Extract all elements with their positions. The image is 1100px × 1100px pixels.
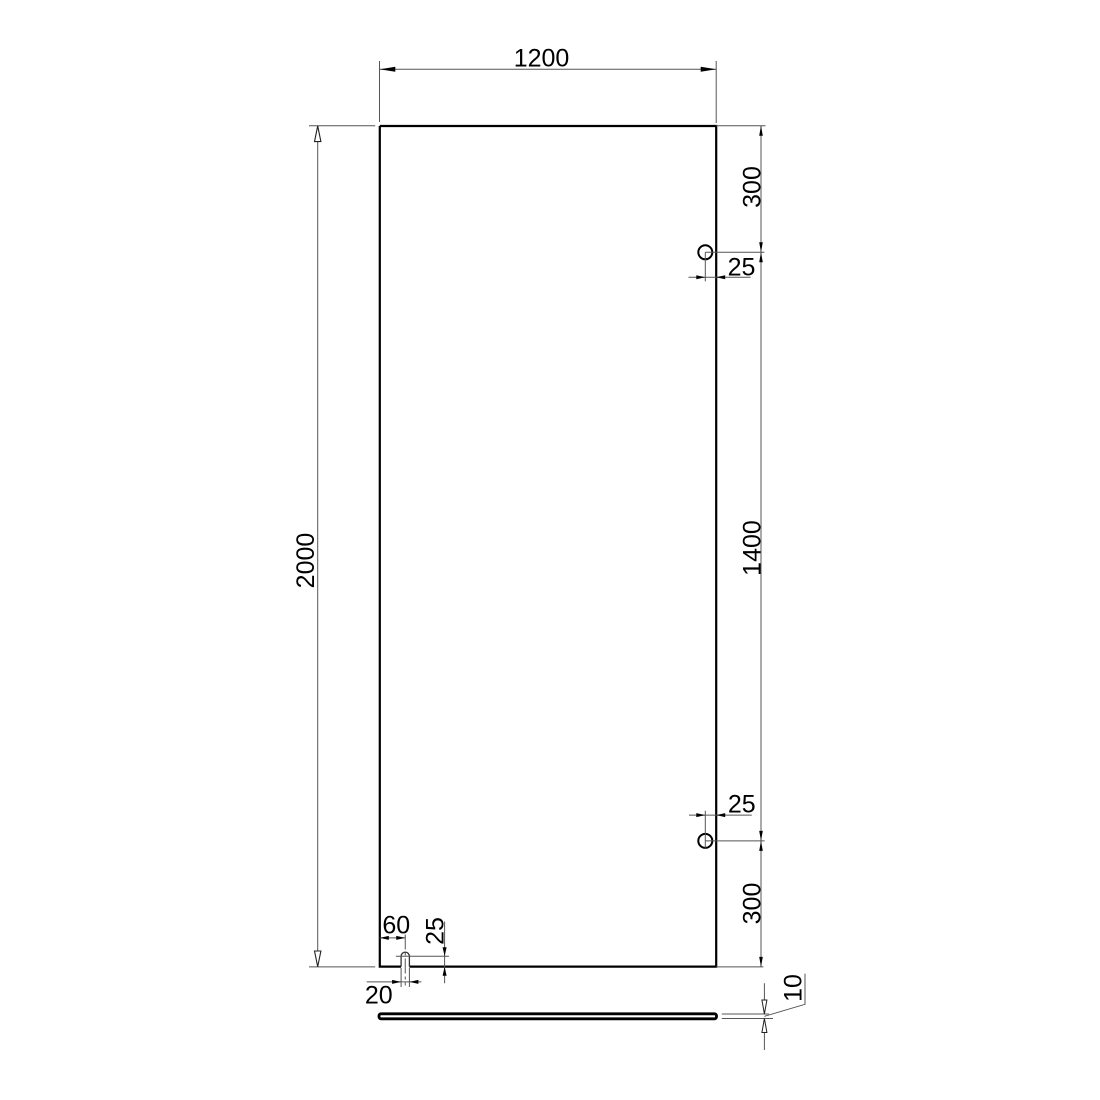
svg-text:1200: 1200 (514, 44, 570, 72)
svg-text:25: 25 (422, 917, 450, 945)
svg-text:2000: 2000 (292, 533, 320, 589)
svg-text:20: 20 (365, 982, 393, 1010)
svg-text:25: 25 (728, 254, 756, 282)
svg-text:60: 60 (382, 911, 410, 939)
svg-text:10: 10 (780, 974, 808, 1002)
svg-text:1400: 1400 (739, 520, 767, 576)
svg-text:25: 25 (728, 790, 756, 818)
svg-text:300: 300 (739, 883, 767, 925)
svg-text:300: 300 (739, 166, 767, 208)
